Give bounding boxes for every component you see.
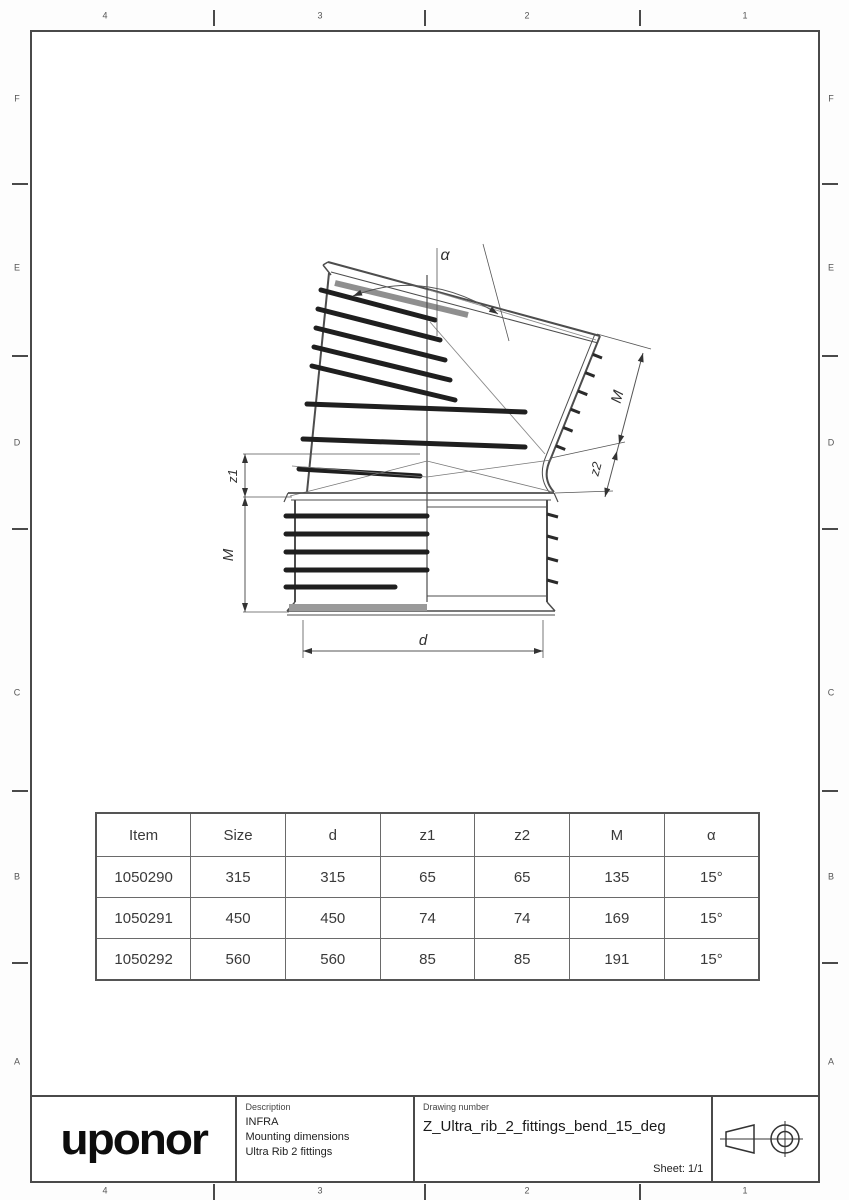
- table-row: 1050290315315656513515°: [96, 857, 759, 898]
- table-cell: 450: [191, 898, 286, 939]
- table-cell: 135: [570, 857, 665, 898]
- sheet-number: Sheet: 1/1: [653, 1163, 703, 1175]
- table-cell: 85: [380, 939, 475, 981]
- uponor-logo: uponor: [61, 1117, 207, 1161]
- table-cell: 1050290: [96, 857, 191, 898]
- zone-label-bottom: 4: [102, 1187, 107, 1196]
- border-tick: [822, 790, 838, 792]
- dimensions-table-body: 1050290315315656513515°10502914504507474…: [96, 857, 759, 981]
- dim-label-z1: z1: [225, 469, 240, 484]
- table-header-cell: d: [285, 813, 380, 857]
- zone-label-right: B: [828, 873, 834, 882]
- table-header-cell: z1: [380, 813, 475, 857]
- table-cell: 74: [380, 898, 475, 939]
- zone-label-top: 3: [317, 12, 322, 21]
- projection-symbol-cell: [713, 1097, 818, 1181]
- zone-label-top: 2: [524, 12, 529, 21]
- zone-label-bottom: 1: [742, 1187, 747, 1196]
- table-cell: 15°: [664, 939, 759, 981]
- zone-label-right: A: [828, 1058, 834, 1067]
- logo-cell: uponor: [32, 1097, 237, 1181]
- table-cell: 74: [475, 898, 570, 939]
- zone-label-left: B: [14, 873, 20, 882]
- dimensions-table: ItemSizedz1z2Mα 1050290315315656513515°1…: [95, 812, 760, 981]
- zone-label-left: C: [14, 689, 21, 698]
- description-line: INFRA: [245, 1115, 405, 1130]
- table-cell: 1050292: [96, 939, 191, 981]
- table-header-cell: M: [570, 813, 665, 857]
- border-tick: [12, 183, 28, 185]
- description-label: Description: [245, 1102, 405, 1112]
- table-cell: 191: [570, 939, 665, 981]
- description-lines: INFRAMounting dimensionsUltra Rib 2 fitt…: [245, 1115, 405, 1160]
- table-header-cell: z2: [475, 813, 570, 857]
- pipe-bend-drawing: α M z2 z1 M d: [210, 230, 680, 680]
- table-row: 1050292560560858519115°: [96, 939, 759, 981]
- zone-label-left: E: [14, 264, 20, 273]
- table-header-cell: Item: [96, 813, 191, 857]
- zone-label-bottom: 3: [317, 1187, 322, 1196]
- drawing-sheet: 43214321FEDCBAFEDCBA: [0, 0, 849, 1200]
- table-cell: 85: [475, 939, 570, 981]
- zone-label-right: E: [828, 264, 834, 273]
- zone-label-top: 4: [102, 12, 107, 21]
- zone-label-left: D: [14, 439, 21, 448]
- border-tick: [639, 1184, 641, 1200]
- drawing-number-label: Drawing number: [423, 1102, 703, 1112]
- drawing-number: Z_Ultra_rib_2_fittings_bend_15_deg: [423, 1118, 703, 1135]
- description-line: Ultra Rib 2 fittings: [245, 1145, 405, 1160]
- dim-label-d: d: [419, 632, 428, 649]
- zone-label-bottom: 2: [524, 1187, 529, 1196]
- zone-label-left: F: [14, 95, 20, 104]
- border-tick: [822, 183, 838, 185]
- zone-label-right: D: [828, 439, 835, 448]
- table-cell: 15°: [664, 898, 759, 939]
- table-cell: 315: [285, 857, 380, 898]
- table-cell: 15°: [664, 857, 759, 898]
- table-cell: 450: [285, 898, 380, 939]
- border-tick: [213, 10, 215, 26]
- table-cell: 65: [380, 857, 475, 898]
- table-cell: 560: [285, 939, 380, 981]
- table-cell: 65: [475, 857, 570, 898]
- zone-label-top: 1: [742, 12, 747, 21]
- dim-label-m-lower: M: [220, 548, 237, 561]
- zone-label-right: F: [828, 95, 834, 104]
- table-cell: 560: [191, 939, 286, 981]
- dim-label-m-upper: M: [608, 388, 628, 405]
- border-tick: [12, 790, 28, 792]
- border-tick: [12, 528, 28, 530]
- table-cell: 1050291: [96, 898, 191, 939]
- description-cell: Description INFRAMounting dimensionsUltr…: [237, 1097, 415, 1181]
- border-tick: [424, 10, 426, 26]
- table-header-cell: α: [664, 813, 759, 857]
- border-tick: [822, 355, 838, 357]
- zone-label-left: A: [14, 1058, 20, 1067]
- dim-label-angle: α: [440, 247, 450, 264]
- border-tick: [822, 528, 838, 530]
- border-tick: [822, 962, 838, 964]
- zone-label-right: C: [828, 689, 835, 698]
- table-header-cell: Size: [191, 813, 286, 857]
- table-cell: 315: [191, 857, 286, 898]
- border-tick: [12, 962, 28, 964]
- description-line: Mounting dimensions: [245, 1130, 405, 1145]
- table-cell: 169: [570, 898, 665, 939]
- dimensions-table-header: ItemSizedz1z2Mα: [96, 813, 759, 857]
- drawing-number-cell: Drawing number Z_Ultra_rib_2_fittings_be…: [415, 1097, 713, 1181]
- border-tick: [639, 10, 641, 26]
- border-tick: [424, 1184, 426, 1200]
- title-block: uponor Description INFRAMounting dimensi…: [30, 1095, 820, 1183]
- first-angle-projection-icon: [718, 1111, 813, 1167]
- table-row: 1050291450450747416915°: [96, 898, 759, 939]
- border-tick: [213, 1184, 215, 1200]
- border-tick: [12, 355, 28, 357]
- dim-label-z2: z2: [586, 460, 605, 479]
